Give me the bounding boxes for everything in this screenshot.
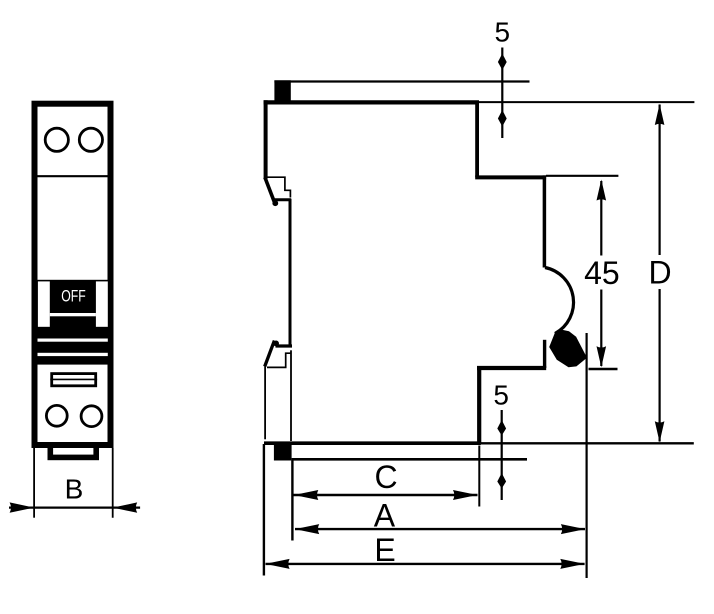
svg-text:5: 5 (493, 379, 509, 410)
svg-text:B: B (65, 474, 84, 505)
svg-text:E: E (374, 532, 395, 568)
svg-text:C: C (375, 459, 398, 495)
svg-text:OFF: OFF (61, 286, 86, 305)
svg-text:45: 45 (584, 255, 620, 291)
svg-text:A: A (374, 498, 396, 534)
svg-text:5: 5 (495, 17, 511, 48)
svg-text:D: D (649, 254, 672, 290)
